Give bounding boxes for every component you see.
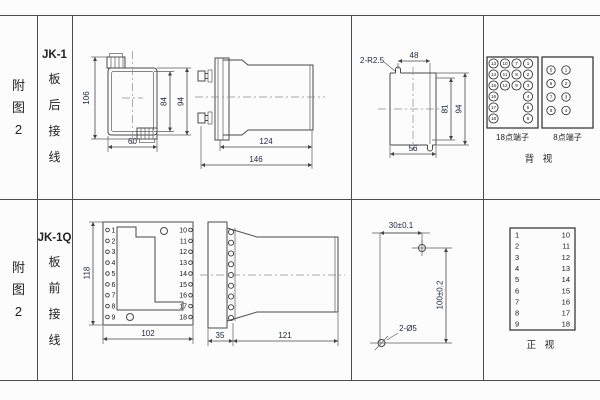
terminal-dot xyxy=(106,293,110,297)
figure-char: 附 xyxy=(12,79,25,92)
dim-121: 121 xyxy=(278,331,292,340)
terminal-number: 5 xyxy=(527,105,530,110)
dim-100: 100±0.2 xyxy=(436,280,445,309)
dim-118: 118 xyxy=(83,266,92,279)
row1-figure-label: 附 图 2 xyxy=(0,15,37,199)
terminal-dot xyxy=(189,261,193,265)
figure-char: 图 xyxy=(12,101,25,114)
wiring-char: 板 xyxy=(48,253,60,270)
wiring-char: 接 xyxy=(48,122,60,139)
table-col-divider-4 xyxy=(483,15,484,380)
rear-view-label: 背 视 xyxy=(525,153,556,165)
slot-radius-label: 2-R2.5 xyxy=(360,56,385,65)
terminal-number: 13 xyxy=(179,260,187,267)
wiring-char: 线 xyxy=(48,148,60,165)
terminal-number: 3 xyxy=(565,95,568,100)
terminal-number: 5 xyxy=(550,68,553,73)
terminal-number: 7 xyxy=(550,95,553,100)
relay-front-view-drawing: 123456789 101112131415161718 118 102 xyxy=(85,218,200,353)
terminal-dot xyxy=(106,228,110,232)
terminal-number: 4 xyxy=(527,94,530,99)
terminal-dot xyxy=(189,272,193,276)
terminal-table-left-numbers: 123456789 xyxy=(515,231,519,329)
terminal-table-right-numbers: 101112131415161718 xyxy=(562,231,570,329)
table-number: 8 xyxy=(515,309,519,318)
relay-side-view-drawing: 124 146 xyxy=(195,40,350,175)
terminal-number: 18 xyxy=(179,314,187,321)
wiring-char: 后 xyxy=(48,96,60,113)
terminal-dot xyxy=(189,228,193,232)
table-number: 5 xyxy=(515,275,519,284)
dim-81: 81 xyxy=(441,104,450,113)
table-number: 4 xyxy=(515,264,519,273)
top-terminal-block xyxy=(107,54,125,69)
dim-56: 56 xyxy=(409,144,418,153)
wiring-char: 线 xyxy=(48,331,60,348)
dim-48: 48 xyxy=(410,51,419,60)
table-number: 9 xyxy=(515,320,519,329)
wiring-char: 前 xyxy=(48,279,60,296)
terminal-number: 3 xyxy=(527,83,530,88)
terminal-screw xyxy=(228,283,233,288)
terminal-screw xyxy=(228,262,233,267)
terminal-number: 12 xyxy=(179,249,187,256)
relay-front-wiring-side-view: 35 121 xyxy=(200,218,350,353)
table-number: 14 xyxy=(562,275,570,284)
terminal-number: 5 xyxy=(112,271,116,278)
terminal-number: 17 xyxy=(491,105,497,110)
terminal-dot xyxy=(106,261,110,265)
dim-102: 102 xyxy=(141,329,155,338)
terminal-8-label: 8点端子 xyxy=(553,132,581,142)
front-view-right-terminals: 101112131415161718 xyxy=(179,227,192,321)
terminal-18-label: 18点端子 xyxy=(496,132,529,142)
terminal-number: 6 xyxy=(112,282,116,289)
front-view-left-terminals: 123456789 xyxy=(106,227,116,321)
cover-contour xyxy=(117,227,183,310)
mounting-slot-bottom xyxy=(428,145,433,151)
terminal-dot xyxy=(106,239,110,243)
terminal-number: 2 xyxy=(112,238,116,245)
dimension-lines xyxy=(89,222,193,344)
terminal-number: 3 xyxy=(112,249,116,256)
terminal-number: 9 xyxy=(112,314,116,321)
relay-body xyxy=(223,60,313,135)
table-border-top xyxy=(0,15,600,16)
table-number: 11 xyxy=(562,242,570,251)
terminal-dot xyxy=(189,250,193,254)
figure-char: 2 xyxy=(15,305,22,318)
terminal-number: 15 xyxy=(179,282,187,289)
terminal-screw xyxy=(228,251,233,256)
terminal-number: 6 xyxy=(527,116,530,121)
terminal-layout-rear-view: 131415161718101112789123456 56781234 18点… xyxy=(485,50,597,168)
terminal-number: 16 xyxy=(491,94,497,99)
mounting-flange xyxy=(215,58,229,140)
table-row-divider xyxy=(0,199,600,200)
terminal-number: 2 xyxy=(527,72,530,77)
terminal-number: 14 xyxy=(491,72,497,77)
terminal-number: 11 xyxy=(180,238,187,245)
dim-106: 106 xyxy=(82,91,91,105)
terminal-number: 14 xyxy=(179,271,187,278)
wiring-char: 板 xyxy=(48,70,60,87)
terminal-number: 4 xyxy=(112,260,116,267)
table-number: 18 xyxy=(562,320,570,329)
terminal-screw xyxy=(228,294,233,299)
mounting-screw xyxy=(198,70,212,82)
table-col-divider-2 xyxy=(72,15,73,380)
terminal-number: 4 xyxy=(565,108,568,113)
wiring-char: 接 xyxy=(48,305,60,322)
terminal-number: 8 xyxy=(550,108,553,113)
terminal-number: 10 xyxy=(502,61,508,66)
terminal-number: 6 xyxy=(550,81,553,86)
mounting-hole xyxy=(127,314,134,321)
table-number: 13 xyxy=(562,264,570,273)
table-number: 2 xyxy=(515,242,519,251)
terminal-number: 16 xyxy=(179,293,187,300)
hole-diameter-label: 2-Ø5 xyxy=(399,324,417,333)
drilling-plan-drawing: 30±0.1 100±0.2 2-Ø5 xyxy=(360,218,480,358)
terminal-dot xyxy=(106,304,110,308)
terminal-number: 12 xyxy=(502,83,508,88)
terminal-number: 1 xyxy=(527,61,530,66)
table-number: 15 xyxy=(562,286,570,295)
terminal-dot xyxy=(106,315,110,319)
dim-84: 84 xyxy=(160,97,169,106)
terminal-dot xyxy=(189,315,193,319)
terminal-18-circles: 131415161718101112789123456 xyxy=(489,59,533,123)
terminal-number: 1 xyxy=(565,68,568,73)
relay-rear-outline-drawing: 106 84 94 60 xyxy=(75,35,195,175)
dim-94: 94 xyxy=(177,97,186,106)
table-col-divider-3 xyxy=(351,15,352,380)
terminal-dot xyxy=(106,250,110,254)
terminal-number: 1 xyxy=(112,227,116,234)
figure-char: 图 xyxy=(12,283,25,296)
terminal-number: 15 xyxy=(491,83,497,88)
terminal-table-front-view: 123456789 101112131415161718 正 视 xyxy=(495,222,595,357)
terminal-8-circles: 56781234 xyxy=(547,66,570,115)
terminal-number: 17 xyxy=(179,304,187,311)
table-number: 17 xyxy=(562,309,570,318)
terminal-screw xyxy=(228,305,233,310)
figure-char: 2 xyxy=(15,123,22,136)
engineering-drawing-page: 附 图 2 JK-1 板 后 接 线 附 图 2 JK-1Q 板 前 接 线 xyxy=(0,0,600,400)
dim-35: 35 xyxy=(216,331,225,340)
mounting-screw xyxy=(198,112,212,124)
terminal-number: 2 xyxy=(565,81,568,86)
terminal-number: 13 xyxy=(491,61,497,66)
table-number: 16 xyxy=(562,297,570,306)
table-number: 6 xyxy=(515,286,519,295)
row2-figure-label: 附 图 2 xyxy=(0,199,37,380)
front-view-label: 正 视 xyxy=(527,339,558,351)
terminal-number: 10 xyxy=(179,227,187,234)
terminal-number: 8 xyxy=(112,304,116,311)
terminal-number: 8 xyxy=(515,72,518,77)
terminal-number: 7 xyxy=(112,293,116,300)
terminal-dot xyxy=(189,293,193,297)
terminal-screw xyxy=(228,240,233,245)
table-number: 7 xyxy=(515,297,519,306)
terminal-dot xyxy=(189,283,193,287)
terminal-number: 11 xyxy=(503,72,508,77)
terminal-dot xyxy=(106,283,110,287)
dim-30: 30±0.1 xyxy=(389,221,414,230)
relay-body xyxy=(227,228,338,321)
terminal-dot xyxy=(189,304,193,308)
table-number: 1 xyxy=(515,231,519,240)
table-number: 3 xyxy=(515,253,519,262)
mounting-hole xyxy=(161,228,168,235)
row1-model-label: JK-1 板 后 接 线 xyxy=(37,15,72,199)
row2-model-label: JK-1Q 板 前 接 线 xyxy=(37,199,72,380)
table-number: 10 xyxy=(562,231,570,240)
terminal-number: 9 xyxy=(515,83,518,88)
dim-124: 124 xyxy=(259,137,273,146)
terminal-dot xyxy=(189,239,193,243)
dim-94: 94 xyxy=(455,104,464,113)
table-border-bottom xyxy=(0,380,600,381)
terminal-dot xyxy=(106,272,110,276)
table-number: 12 xyxy=(562,253,570,262)
terminal-number: 7 xyxy=(515,61,518,66)
terminal-number: 18 xyxy=(491,116,497,121)
model-name: JK-1Q xyxy=(38,232,72,244)
dim-146: 146 xyxy=(249,155,263,164)
panel-cutout-drawing: 2-R2.5 48 81 94 56 xyxy=(358,45,483,175)
figure-char: 附 xyxy=(12,261,25,274)
model-name: JK-1 xyxy=(42,49,67,61)
dim-60: 60 xyxy=(128,137,137,146)
